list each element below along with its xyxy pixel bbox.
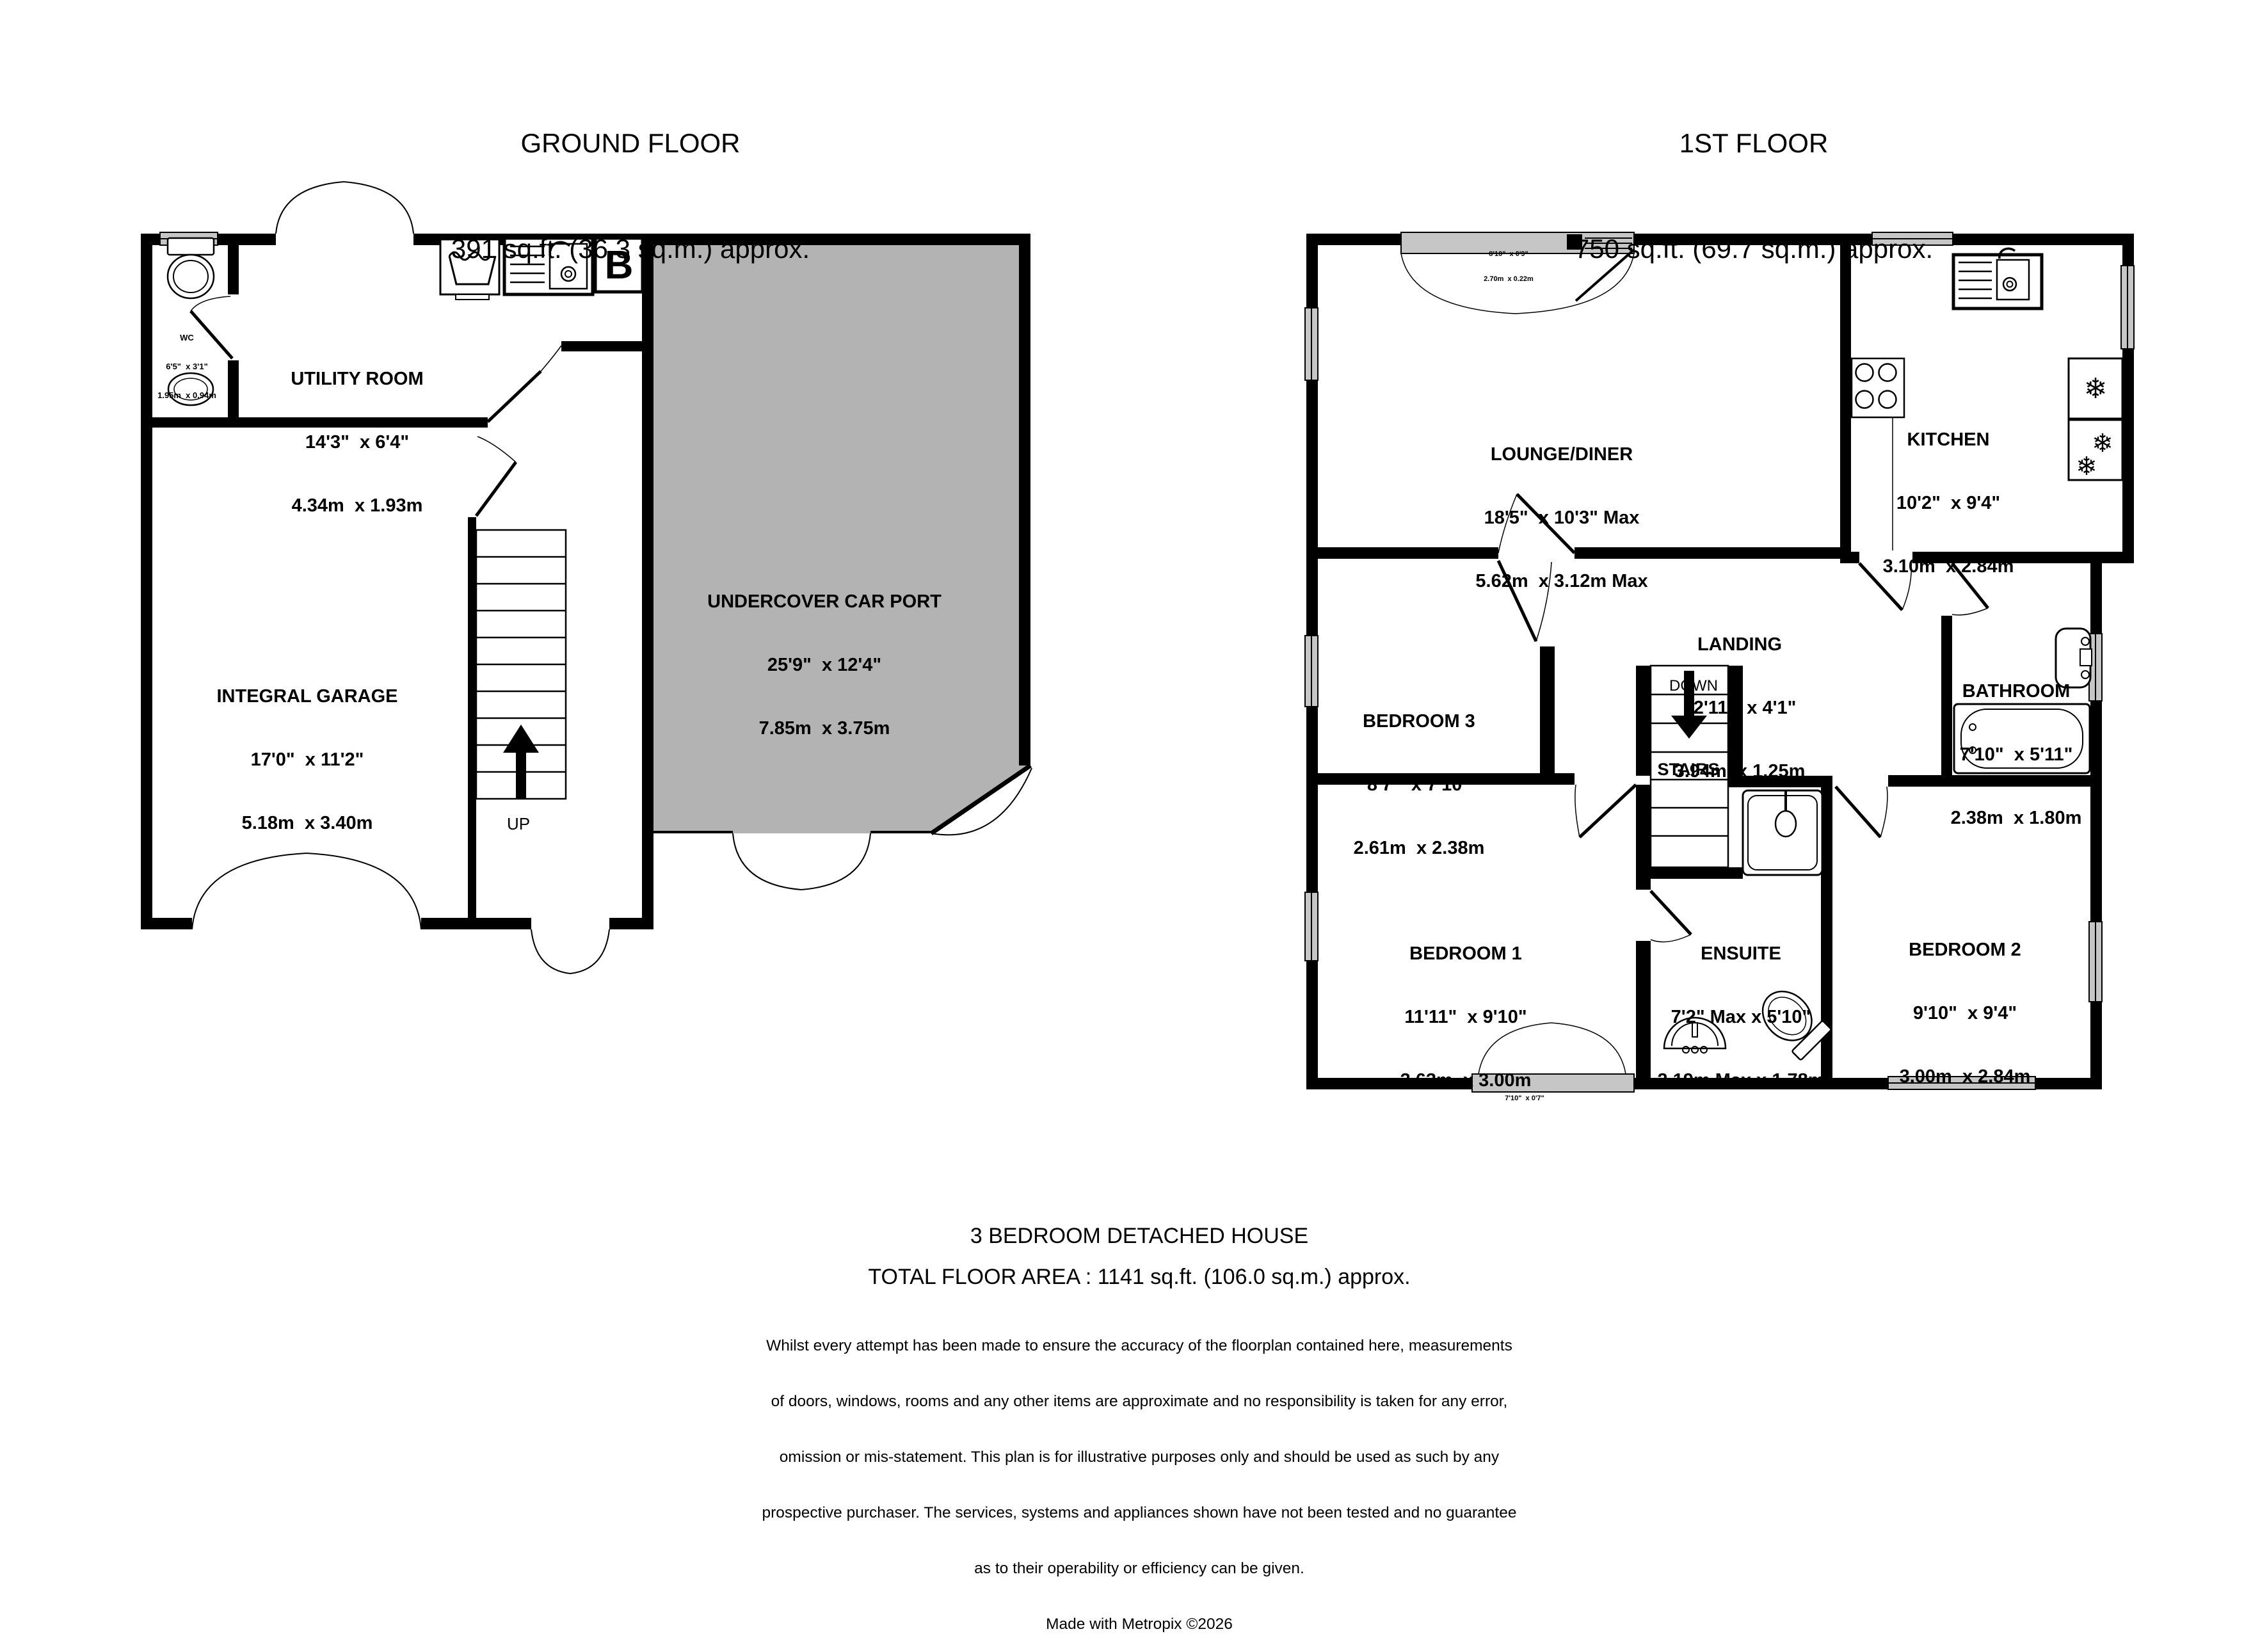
- stairs-label: STAIRS: [1657, 759, 1719, 780]
- stairs-up-label: UP: [507, 814, 530, 834]
- kitchen-sink-icon: [1953, 248, 2042, 309]
- bay-window-bottom-label: 7'10" x 0'7": [1505, 1078, 1544, 1111]
- first-floor-title: 1ST FLOOR 750 sq.ft. (69.7 sq.m.) approx…: [1575, 55, 1933, 301]
- room-label-kitchen: KITCHEN 10'2" x 9'4" 3.10m x 2.84m: [1883, 387, 2014, 598]
- toilet-icon: [168, 238, 214, 298]
- fridge-icon: ❄: [2069, 358, 2122, 419]
- property-type: 3 BEDROOM DETACHED HOUSE: [970, 1224, 1308, 1249]
- room-label-utility: UTILITY ROOM 14'3" x 6'4" 4.34m x 1.93m: [291, 326, 423, 538]
- disclaimer-line: as to their operability or efficiency ca…: [762, 1559, 1516, 1578]
- metropix-credit: Made with Metropix ©2026: [762, 1615, 1516, 1633]
- room-label-bathroom: BATHROOM 7'10" x 5'11" 2.38m x 1.80m: [1951, 639, 2082, 850]
- svg-text:❄: ❄: [2076, 453, 2097, 481]
- disclaimer-line: of doors, windows, rooms and any other i…: [762, 1392, 1516, 1411]
- room-label-bedroom3: BEDROOM 3 8'7" x 7'10" 2.61m x 2.38m: [1354, 669, 1485, 880]
- first-floor-name: 1ST FLOOR: [1575, 125, 1933, 161]
- stairs-down-label: DOWN: [1669, 677, 1718, 695]
- room-label-lounge: LOUNGE/DINER 18'5" x 10'3" Max 5.62m x 3…: [1475, 402, 1647, 613]
- room-label-garage: INTEGRAL GARAGE 17'0" x 11'2" 5.18m x 3.…: [216, 644, 397, 855]
- disclaimer-line: prospective purchaser. The services, sys…: [762, 1504, 1516, 1522]
- up-arrow-icon: [503, 725, 539, 799]
- bay-window-top-label: 8'10" x 0'9" 2.70m x 0.22m: [1484, 234, 1534, 292]
- total-floor-area: TOTAL FLOOR AREA : 1141 sq.ft. (106.0 sq…: [868, 1265, 1410, 1290]
- floorplan-page: { "colors": { "wall": "#000000", "carpor…: [0, 0, 2244, 1476]
- room-label-carport: UNDERCOVER CAR PORT 25'9" x 12'4" 7.85m …: [707, 549, 942, 760]
- room-label-wc: WC 6'5" x 3'1" 1.95m x 0.94m: [157, 314, 216, 410]
- room-label-ensuite: ENSUITE 7'2" Max x 5'10" 2.19m Max x 1.7…: [1657, 901, 1824, 1112]
- disclaimer-line: omission or mis-statement. This plan is …: [762, 1448, 1516, 1466]
- svg-text:❄: ❄: [2084, 373, 2108, 405]
- freezer-icon: ❄ ❄: [2069, 420, 2122, 481]
- disclaimer-line: Whilst every attempt has been made to en…: [762, 1336, 1516, 1355]
- boiler-label: B: [605, 241, 634, 291]
- ground-stairs: [476, 530, 566, 799]
- first-floor-area: 750 sq.ft. (69.7 sq.m.) approx.: [1575, 231, 1933, 266]
- ground-floor-name: GROUND FLOOR: [451, 125, 810, 161]
- room-label-bedroom2: BEDROOM 2 9'10" x 9'4" 3.00m x 2.84m: [1900, 897, 2031, 1109]
